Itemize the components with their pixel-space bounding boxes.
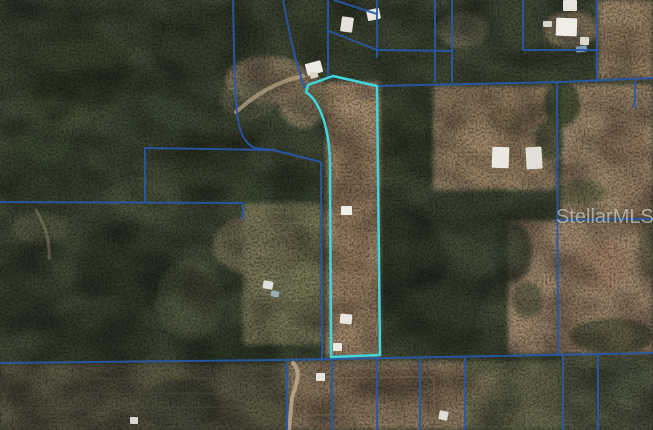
- aerial-parcel-map: StellarMLS: [0, 0, 653, 430]
- map-canvas: [0, 0, 653, 430]
- light-speckle-texture: [0, 0, 653, 430]
